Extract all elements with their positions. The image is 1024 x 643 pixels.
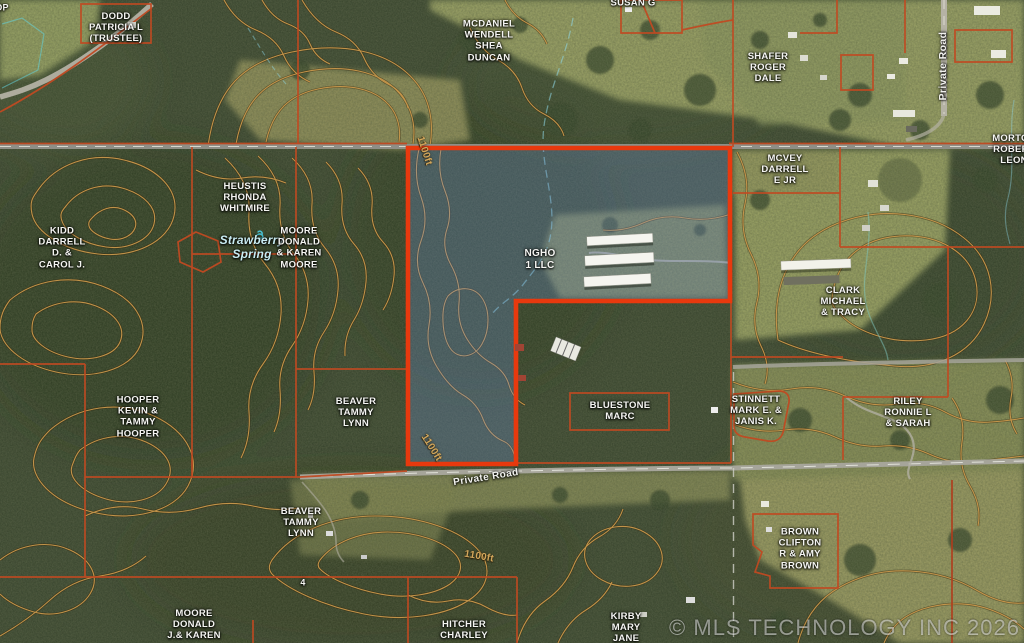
map-canvas[interactable]: OP DODD PATRICIA L (TRUSTEE) Strawberry … [0,0,1024,643]
poultry-houses [582,233,656,290]
satellite-basemap [0,0,1024,643]
